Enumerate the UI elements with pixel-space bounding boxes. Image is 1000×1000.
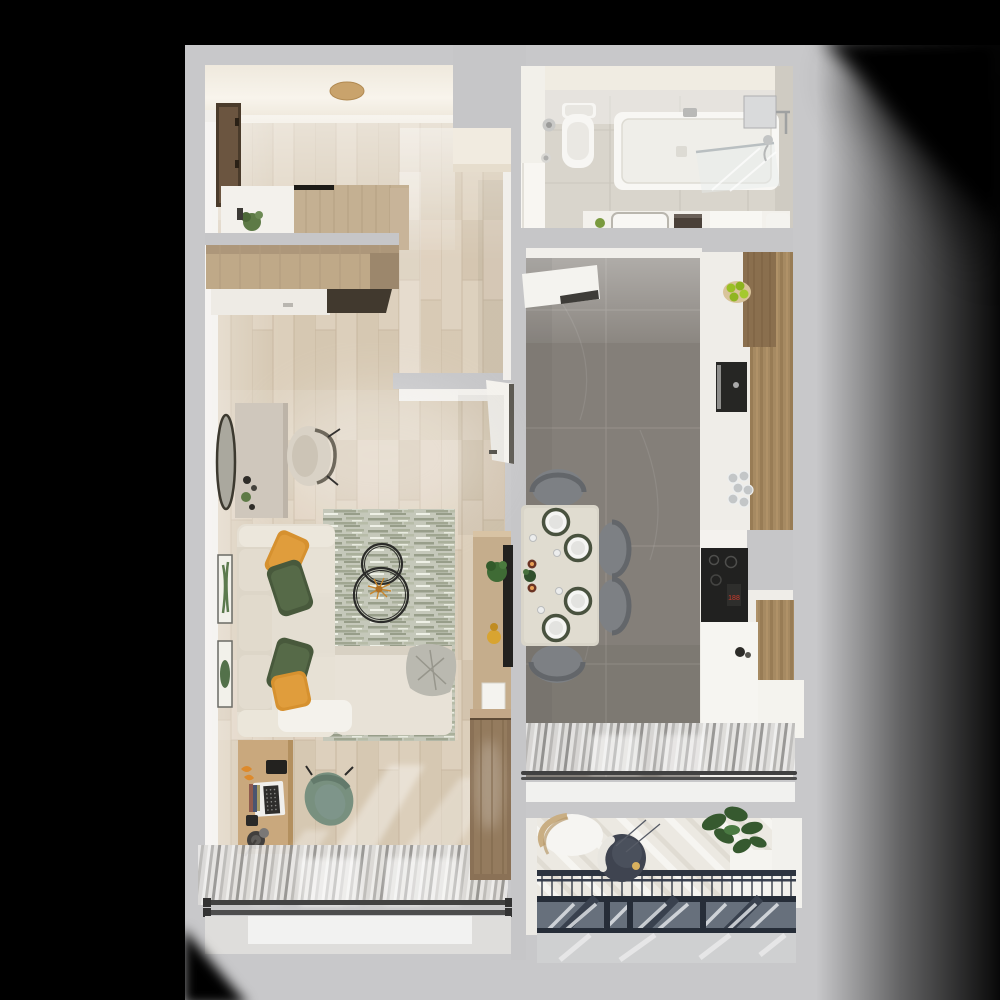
svg-text:188: 188: [728, 595, 740, 602]
